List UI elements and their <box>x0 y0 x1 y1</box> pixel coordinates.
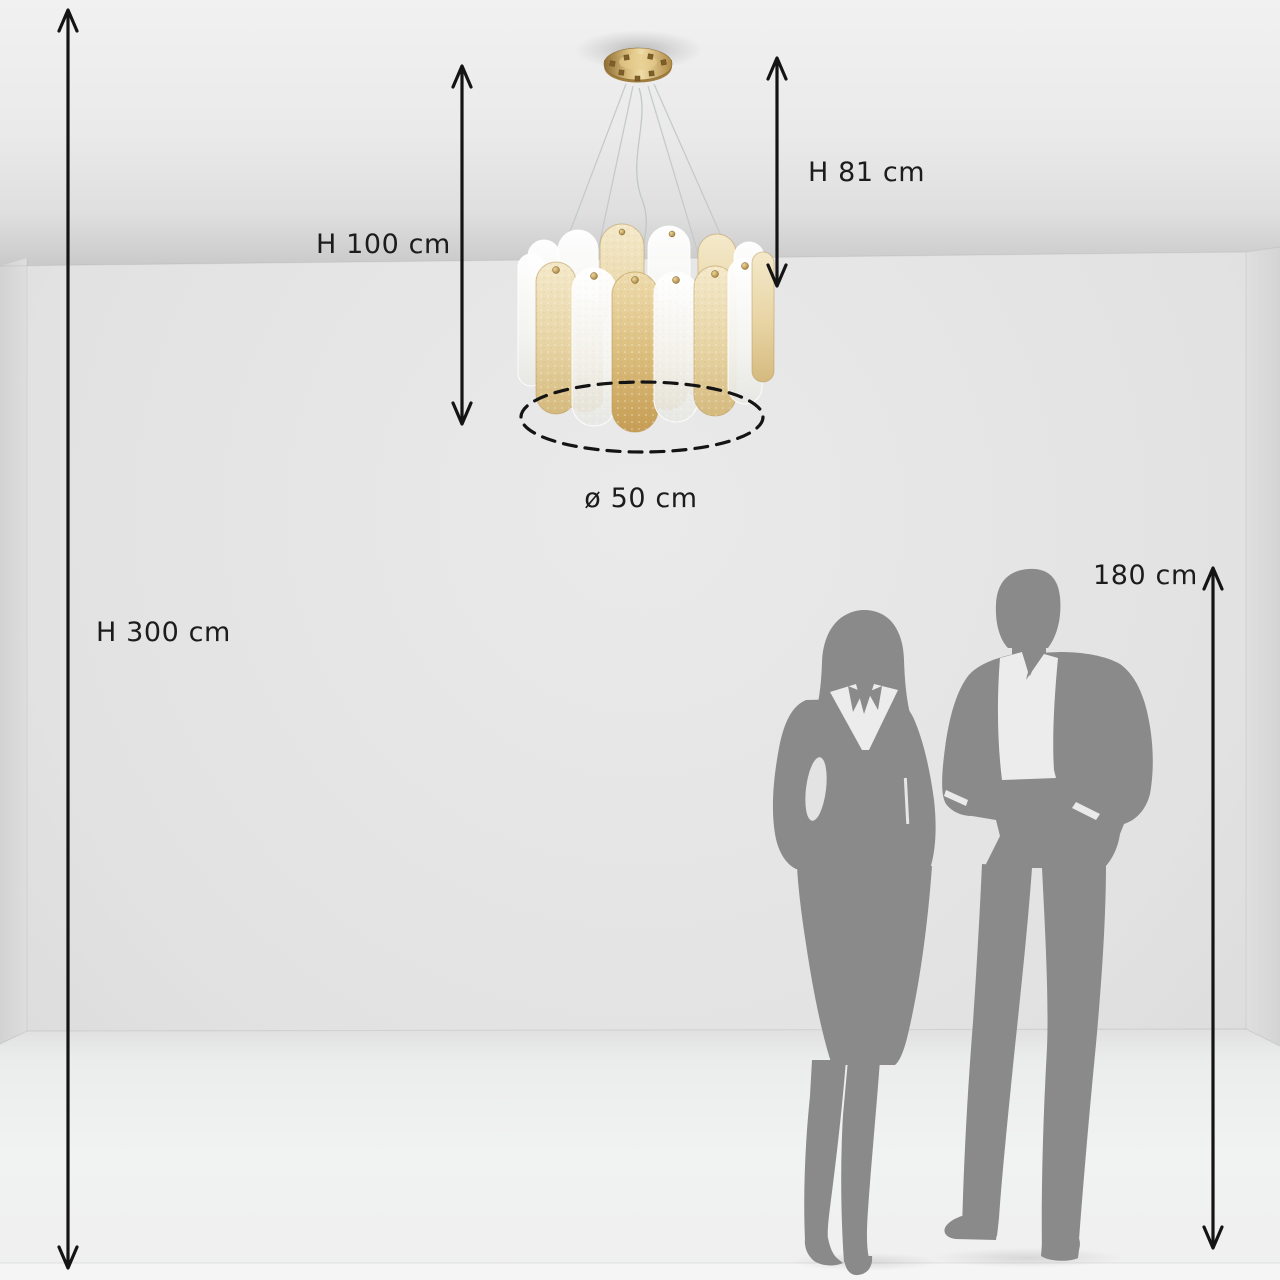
suspension-height-label: H 81 cm <box>808 157 925 189</box>
right-side-wall <box>1246 247 1280 1046</box>
fixture-height-label: H 100 cm <box>316 229 451 261</box>
person-height-label: 180 cm <box>1093 560 1198 592</box>
diameter-label: ø 50 cm <box>584 483 697 515</box>
chandelier-canopy <box>604 48 672 83</box>
left-side-wall <box>0 258 27 1044</box>
man-floor-shadow <box>933 1248 1123 1268</box>
room-scene: H 300 cm H 100 cm H 81 cm ø 50 cm 180 cm <box>0 0 1280 1280</box>
room-height-label: H 300 cm <box>96 617 231 649</box>
